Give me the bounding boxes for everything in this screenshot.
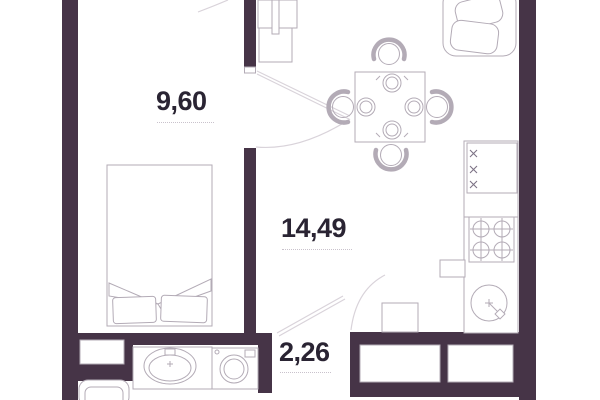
bedroom-area-label: 9,60: [156, 88, 207, 115]
entry-door-arc: [198, 0, 228, 12]
shaft-niche-left: [360, 345, 440, 382]
hallway-area-underline: [280, 372, 331, 373]
armchair-cushion-bottom: [449, 19, 499, 55]
counter-extension: [440, 260, 465, 277]
kitchen: [382, 141, 518, 333]
living-area-underline: [282, 249, 352, 250]
chair-bottom: [376, 145, 407, 170]
hallway-area-label: 2,26: [279, 339, 330, 366]
shower-tray: [79, 380, 129, 400]
basin-faucet: [165, 349, 175, 355]
pillow-right: [161, 295, 208, 323]
kitchen-counter: [464, 141, 518, 333]
pillow-left: [113, 296, 157, 323]
washing-machine: [212, 348, 258, 389]
hallway-door: [277, 275, 385, 336]
living-area-label: 14,49: [281, 215, 346, 242]
chair-right: [427, 91, 452, 122]
armchair: [443, 0, 516, 56]
bed: [107, 165, 212, 326]
shaft-niche-right: [448, 345, 513, 382]
bedroom-door: [256, 71, 350, 147]
chair-left: [329, 91, 354, 122]
wall-bedroom-divider-top: [244, 0, 256, 68]
chair-top: [374, 40, 405, 65]
wall-bedroom-divider: [244, 148, 256, 334]
bedroom-door-arc: [256, 119, 350, 147]
floor-plan: 9,60 14,49 2,26: [0, 0, 600, 400]
wall-bathroom-right: [258, 333, 272, 393]
vent-shaft-niche: [80, 340, 124, 364]
dining-table: [355, 72, 425, 142]
door-jamb-cap: [245, 67, 256, 73]
hallway-door-arc: [351, 275, 385, 330]
dining-set: [329, 40, 452, 170]
cabinet-panel: [272, 0, 279, 34]
washbasin: [144, 348, 196, 384]
cabinet-top: [258, 0, 297, 62]
side-table: [382, 303, 418, 332]
bedroom-area-underline: [157, 122, 214, 123]
